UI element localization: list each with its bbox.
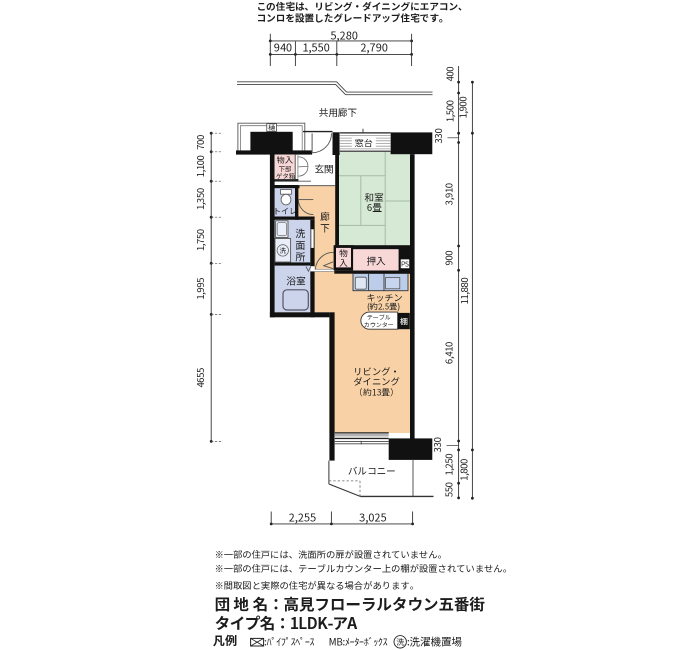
svg-text:1,900: 1,900 <box>456 97 470 119</box>
svg-text:バルコニー: バルコニー <box>348 463 396 477</box>
svg-text:※間取図と実際の住宅が異なる場合があります。: ※間取図と実際の住宅が異なる場合があります。 <box>214 578 419 592</box>
svg-text:入: 入 <box>339 257 348 269</box>
svg-text:棚: 棚 <box>400 317 408 328</box>
svg-text:MB:ﾒｰﾀｰﾎﾞｯｸｽ: MB:ﾒｰﾀｰﾎﾞｯｸｽ <box>329 633 388 648</box>
svg-text:ゲタ箱: ゲタ箱 <box>276 171 296 180</box>
svg-text:400: 400 <box>442 67 456 82</box>
svg-text:押入: 押入 <box>366 253 386 267</box>
svg-text:カウンター: カウンター <box>364 320 394 329</box>
svg-text:330: 330 <box>431 129 445 144</box>
svg-text::ﾊﾟｲﾌﾟｽﾍﾟｰｽ: :ﾊﾟｲﾌﾟｽﾍﾟｰｽ <box>264 633 314 648</box>
svg-text:（約13畳）: （約13畳） <box>354 385 399 398</box>
svg-text:1,800: 1,800 <box>456 459 470 481</box>
svg-text:3,025: 3,025 <box>359 510 386 526</box>
svg-text:1,550: 1,550 <box>302 40 329 56</box>
svg-text:タイプ名：1LDK-アA: タイプ名：1LDK-アA <box>215 612 358 634</box>
svg-text:所: 所 <box>295 248 305 263</box>
svg-text:3,910: 3,910 <box>441 183 455 205</box>
svg-text:樋: 樋 <box>268 122 275 132</box>
svg-text:下: 下 <box>320 221 330 235</box>
svg-text:940: 940 <box>274 40 292 56</box>
svg-text:(約2.5畳): (約2.5畳) <box>367 301 400 313</box>
svg-text:550: 550 <box>441 482 455 497</box>
svg-text:4655: 4655 <box>193 368 207 388</box>
svg-text:コンロを設置したグレードアップ住宅です。: コンロを設置したグレードアップ住宅です。 <box>257 11 449 25</box>
svg-text:洗: 洗 <box>396 637 405 648</box>
svg-text:共用廊下: 共用廊下 <box>319 105 358 119</box>
svg-text:洗: 洗 <box>280 246 287 255</box>
svg-text:700: 700 <box>193 135 207 150</box>
svg-text:トイレ: トイレ <box>273 206 297 217</box>
svg-text:2,790: 2,790 <box>360 40 387 56</box>
svg-text:6畳: 6畳 <box>367 200 382 214</box>
svg-text:PS: PS <box>401 260 410 270</box>
svg-text:浴室: 浴室 <box>286 274 306 288</box>
svg-text::洗濯機置場: :洗濯機置場 <box>407 634 463 649</box>
svg-text:900: 900 <box>441 251 455 266</box>
svg-text:1,100: 1,100 <box>193 155 207 177</box>
svg-text:玄関: 玄関 <box>314 161 333 175</box>
svg-text:1,250: 1,250 <box>441 454 455 476</box>
svg-text:窓台: 窓台 <box>354 136 374 149</box>
svg-text:※一部の住戸には、テーブルカウンター上の棚が設置されていませ: ※一部の住戸には、テーブルカウンター上の棚が設置されていません。 <box>214 561 512 575</box>
svg-text:2,255: 2,255 <box>289 510 316 526</box>
svg-text:1,995: 1,995 <box>193 278 207 300</box>
svg-text:11,880: 11,880 <box>457 278 471 305</box>
svg-text:凡例: 凡例 <box>213 632 237 649</box>
svg-text:1,750: 1,750 <box>193 229 207 251</box>
svg-text:※一部の住戸には、洗面所の扉が設置されていません。: ※一部の住戸には、洗面所の扉が設置されていません。 <box>214 547 446 561</box>
svg-text:1,350: 1,350 <box>193 188 207 210</box>
svg-text:1,500: 1,500 <box>442 100 456 122</box>
svg-text:6,410: 6,410 <box>441 342 455 364</box>
